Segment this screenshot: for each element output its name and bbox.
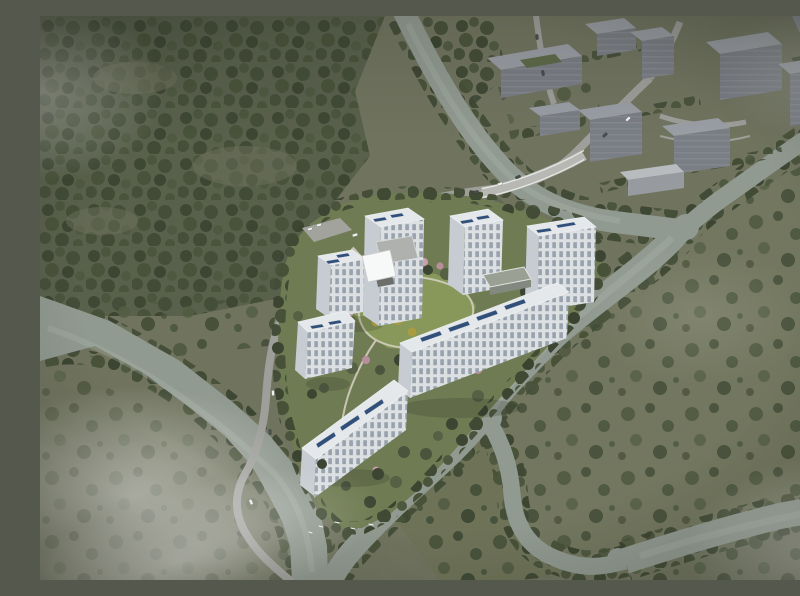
rendering-canvas <box>40 16 800 580</box>
aerial-rendering: Aerial bird's-eye architectural renderin… <box>40 16 800 580</box>
vignette <box>40 16 800 580</box>
